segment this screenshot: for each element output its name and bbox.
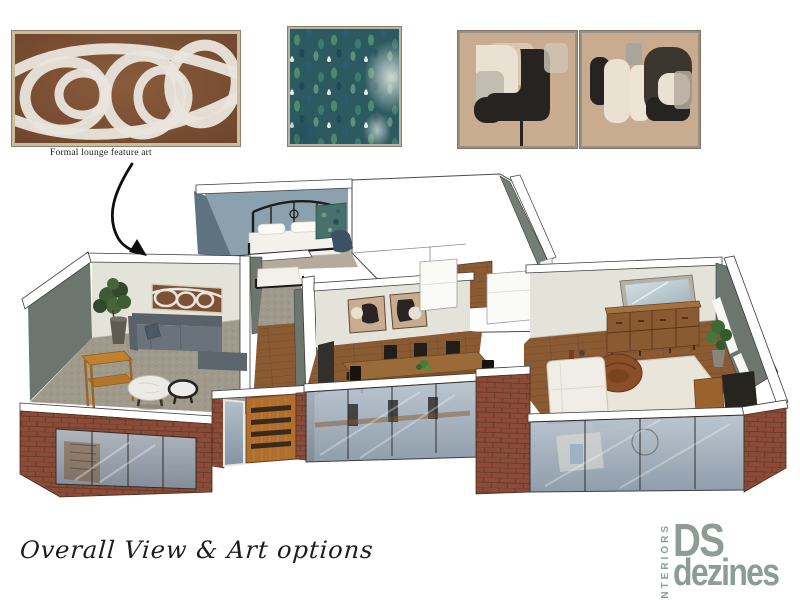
room-living <box>524 256 788 428</box>
room-formal-lounge <box>22 252 250 414</box>
entry-sidelight <box>224 400 244 466</box>
lounge-feature-art <box>152 284 222 313</box>
living-window <box>530 415 744 492</box>
floor-plan-render <box>0 0 800 600</box>
white-sofa <box>547 350 608 421</box>
annotation-arrow-icon <box>112 164 147 256</box>
logo-dezines-text: dezines <box>673 557 778 589</box>
timber-entry-door <box>246 394 296 463</box>
logo-interiors-text: INTERIORS <box>659 523 673 600</box>
page-title: Overall View & Art options <box>19 536 375 564</box>
design-board: Formal lounge feature art <box>0 0 800 600</box>
room-second-bedroom-hall <box>250 257 318 403</box>
lounge-window <box>56 429 196 489</box>
dining-window <box>306 381 478 462</box>
blue-armchair <box>331 230 353 253</box>
brand-logo: INTERIORS DS dezines <box>659 523 798 600</box>
